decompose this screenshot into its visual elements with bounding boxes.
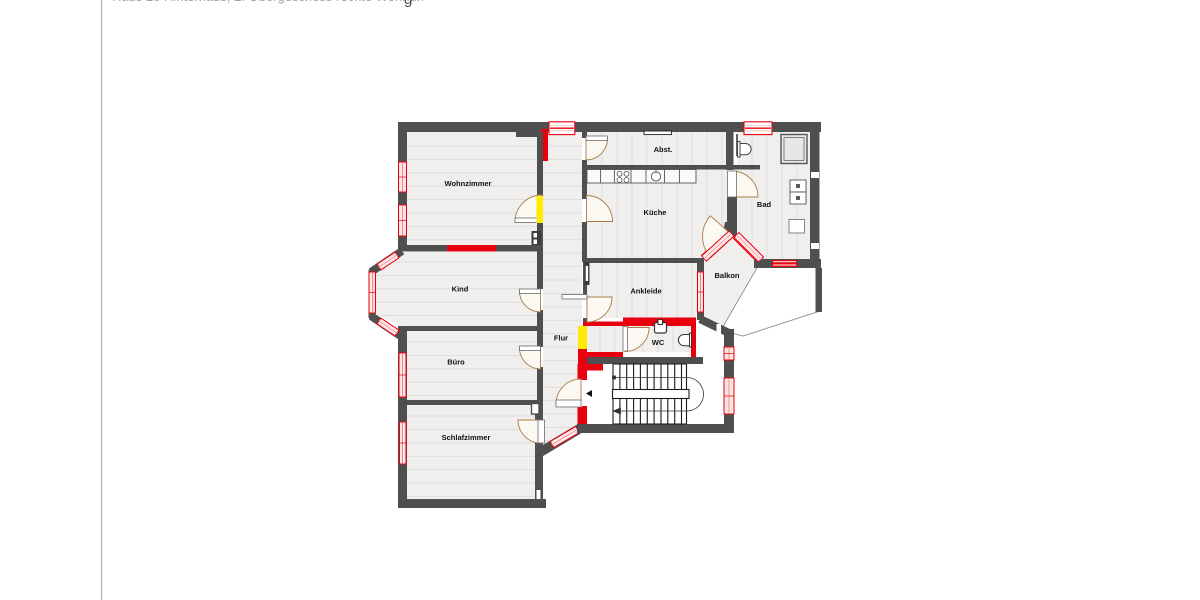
svg-text:WC: WC — [652, 338, 665, 347]
svg-text:Bad: Bad — [757, 200, 772, 209]
svg-text:Haus 20 Hinterhaus, 2. Oberges: Haus 20 Hinterhaus, 2. Obergeschoss rech… — [112, 0, 424, 4]
svg-text:Abst.: Abst. — [654, 145, 673, 154]
svg-text:Ankleide: Ankleide — [630, 287, 661, 296]
svg-text:g: g — [404, 0, 412, 8]
svg-text:Flur: Flur — [554, 334, 568, 343]
svg-text:Wohnzimmer: Wohnzimmer — [445, 179, 492, 188]
svg-text:Kind: Kind — [452, 285, 469, 294]
svg-text:Balkon: Balkon — [714, 271, 739, 280]
svg-text:Schlafzimmer: Schlafzimmer — [442, 433, 491, 442]
svg-text:Büro: Büro — [447, 358, 465, 367]
svg-text:Küche: Küche — [644, 208, 667, 217]
